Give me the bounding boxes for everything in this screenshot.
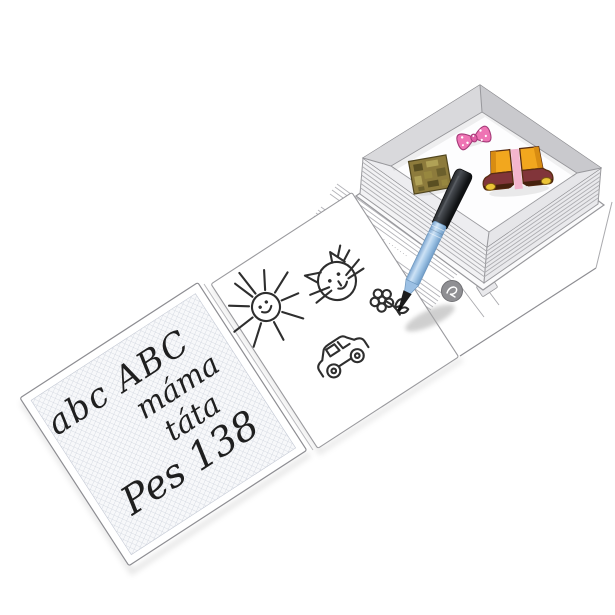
scene: ········ · ····· · ······· bbox=[0, 0, 615, 615]
product-photo: ········ · ····· · ······· bbox=[0, 0, 615, 615]
logo-stamp bbox=[442, 281, 463, 302]
